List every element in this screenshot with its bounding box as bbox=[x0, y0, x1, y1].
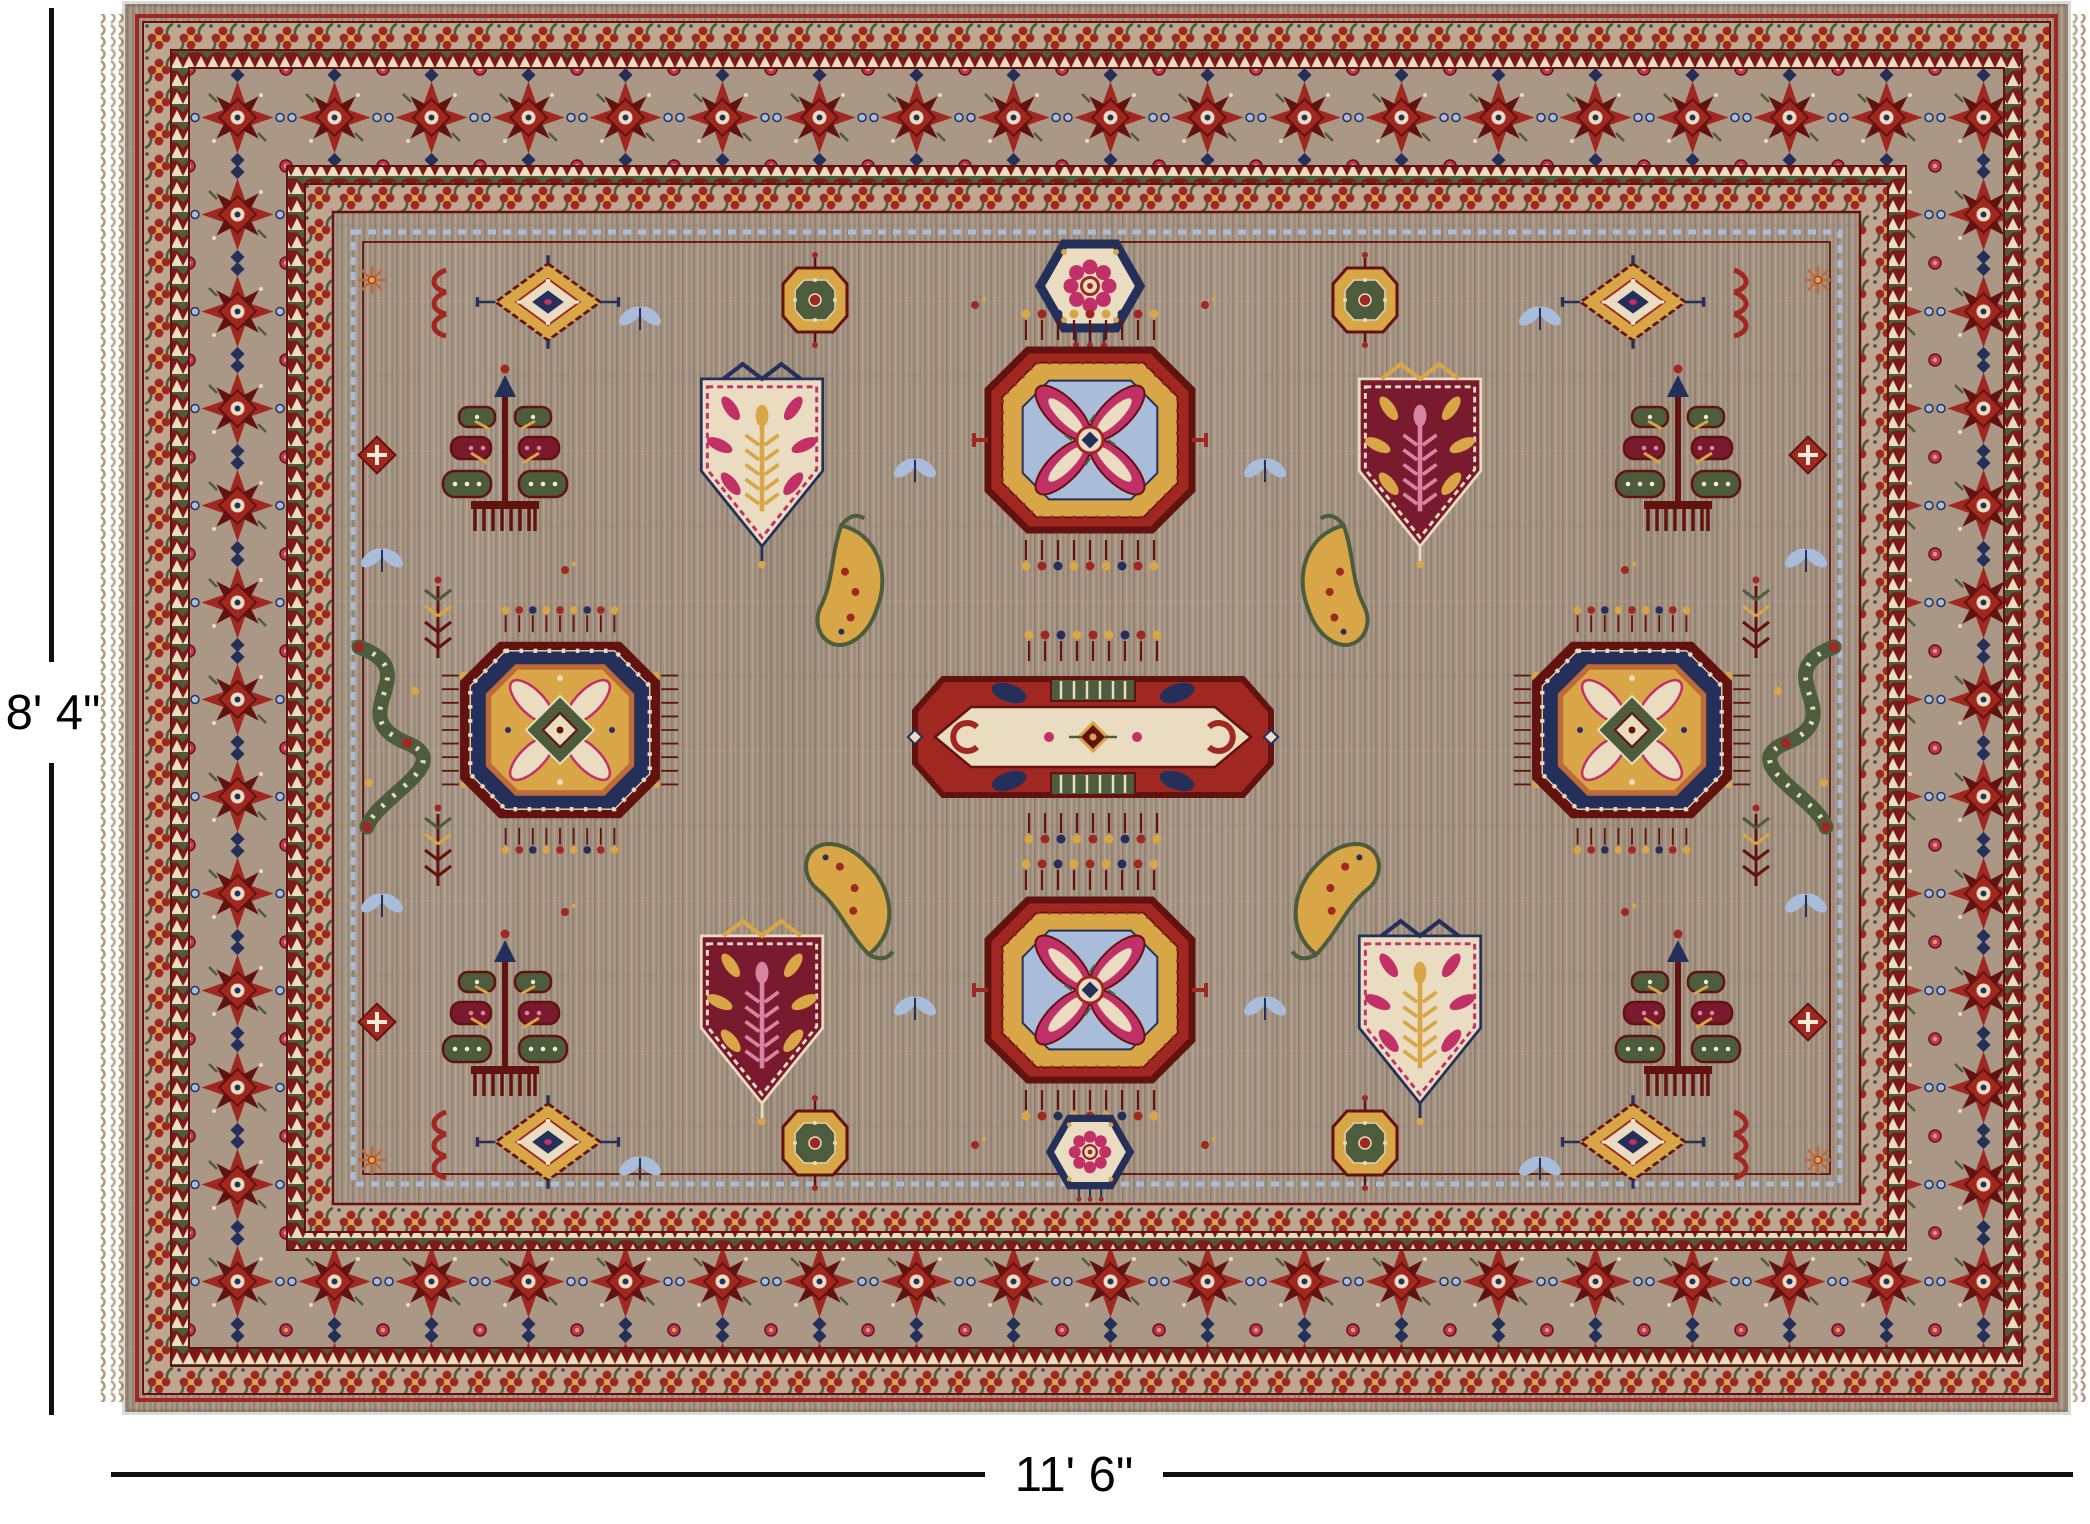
rug bbox=[99, 4, 2090, 1412]
height-dimension-line-lower bbox=[49, 763, 54, 1415]
rug-field bbox=[333, 212, 1860, 1204]
height-dimension-label: 8' 4" bbox=[6, 686, 101, 740]
flower-motif bbox=[1804, 1146, 1832, 1174]
width-dimension-line-right bbox=[1163, 1472, 2073, 1477]
width-dimension: 11' 6" bbox=[111, 1448, 2073, 1502]
height-dimension-line-upper bbox=[49, 8, 54, 662]
width-dimension-line-left bbox=[111, 1472, 985, 1477]
flower-motif bbox=[358, 266, 386, 294]
flower-motif bbox=[1804, 266, 1832, 294]
rug-photo: 8' 4" 11' 6" bbox=[0, 0, 2090, 1524]
width-dimension-label: 11' 6" bbox=[1015, 1448, 1133, 1502]
flower-motif bbox=[358, 1146, 386, 1174]
product-image-canvas: 8' 4" 11' 6" bbox=[0, 0, 2090, 1524]
height-dimension: 8' 4" bbox=[6, 8, 101, 1415]
